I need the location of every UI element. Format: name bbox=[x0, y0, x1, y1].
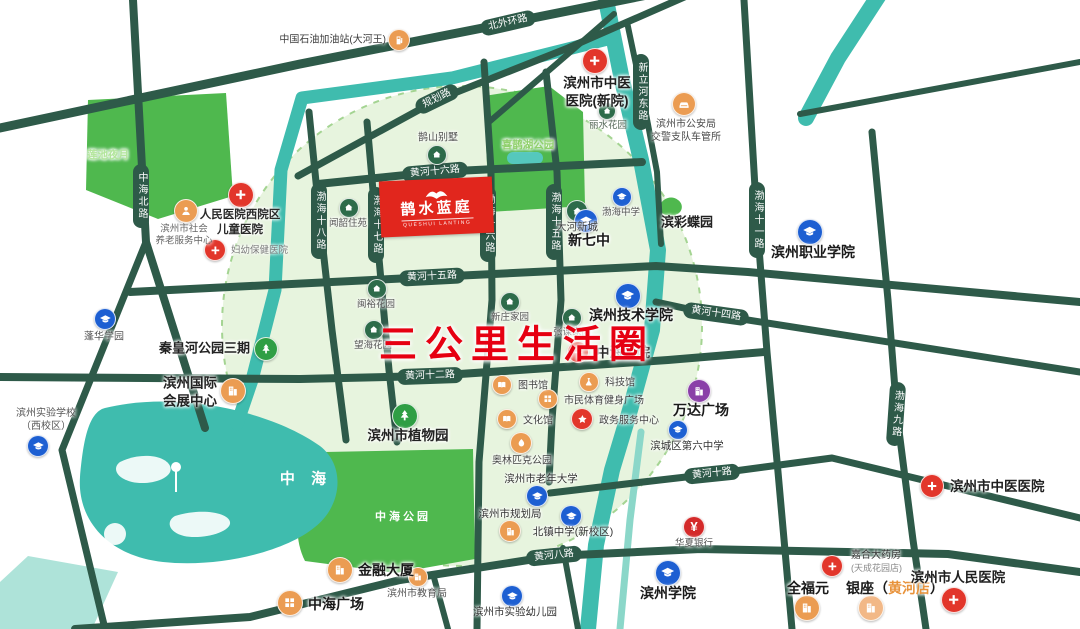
road-label-pill: 中海北路 bbox=[133, 164, 149, 228]
vehicle-admin-marker-icon bbox=[672, 92, 696, 116]
lake bbox=[104, 523, 126, 545]
science-marker-icon bbox=[579, 372, 599, 392]
school-marker-icon bbox=[668, 420, 688, 440]
poi-label: 华夏银行 bbox=[675, 538, 713, 550]
building-marker-icon bbox=[327, 557, 353, 583]
library-marker-icon bbox=[492, 375, 512, 395]
plaza-marker-icon bbox=[277, 590, 303, 616]
poi-label: 滨州市社会 养老服务中心 bbox=[155, 224, 212, 249]
poi-label: 全福元 bbox=[787, 579, 829, 597]
school-marker-icon bbox=[27, 435, 49, 457]
poi-label: 万达广场 bbox=[673, 401, 729, 419]
poi-label: 嘉合大药房 (天成花园店) bbox=[851, 549, 902, 575]
poi-label: 滨州市公安局 交警支队车管所 bbox=[651, 118, 721, 144]
poi-label: 滨州市人民医院 bbox=[911, 569, 1006, 587]
poi-label: 滨州市实验幼儿园 bbox=[473, 606, 557, 620]
lake bbox=[507, 152, 543, 164]
poi-label: 科技馆 bbox=[605, 377, 635, 390]
road bbox=[433, 574, 448, 629]
poi-label: 奥林匹克公园 bbox=[492, 455, 552, 468]
poi-label: 闽裕花园 bbox=[357, 299, 395, 311]
road-label-pill: 新立河东路 bbox=[633, 54, 649, 130]
road-label-pill: 黄河十二路 bbox=[397, 367, 464, 385]
area-label: 中海公园 bbox=[375, 510, 431, 524]
road-label-pill: 渤海十一路 bbox=[749, 182, 765, 258]
building-marker-icon bbox=[499, 520, 521, 542]
poi-label: 滨州市植物园 bbox=[368, 427, 449, 445]
road-15 bbox=[744, 0, 792, 629]
hospital-marker-icon bbox=[941, 587, 967, 613]
school-marker-icon bbox=[797, 219, 823, 245]
poi-label: 丽水花园 bbox=[589, 120, 627, 132]
poi-label: 滨州市规划局 bbox=[479, 508, 542, 522]
poi-label-part: (天成花园店) bbox=[851, 563, 902, 573]
elder-care-marker-icon bbox=[174, 199, 198, 223]
poi-label: 渤海中学 bbox=[602, 207, 640, 219]
bank-marker-icon: ¥ bbox=[683, 516, 705, 538]
residence-marker-icon bbox=[367, 279, 387, 299]
project-name: 鹊水蓝庭 bbox=[400, 199, 473, 217]
area-label: 中 海 bbox=[280, 469, 332, 489]
poi-label: 蓬华学园 bbox=[84, 331, 124, 344]
poi-label: 文化馆 bbox=[523, 415, 553, 428]
poi-label: 滨州实验学校 （西校区） bbox=[16, 407, 76, 433]
park-marker-icon bbox=[392, 403, 418, 429]
poi-label: 闻韶住苑 bbox=[329, 218, 367, 230]
area-label: 喜鹊湖公园 bbox=[502, 139, 555, 153]
poi-label: 金融大厦 bbox=[358, 561, 414, 579]
park-marker-icon bbox=[254, 337, 278, 361]
poi-label: 滨城区第六中学 bbox=[650, 440, 724, 454]
poi-label: 滨州学院 bbox=[640, 584, 696, 602]
hospital-marker-icon bbox=[920, 474, 944, 498]
poi-label: 滨州市中医医院 bbox=[950, 478, 1045, 496]
school-marker-icon bbox=[612, 187, 632, 207]
poi-label: 新七中 bbox=[568, 231, 610, 249]
school-marker-icon bbox=[501, 585, 523, 607]
poi-label: 滨州国际 会展中心 bbox=[163, 374, 217, 409]
poi-label: 政务服务中心 bbox=[599, 415, 659, 428]
school-marker-icon bbox=[526, 485, 548, 507]
school-marker-icon bbox=[94, 308, 116, 330]
poi-label: 滨州职业学院 bbox=[771, 243, 855, 261]
poi-label: 中国石油加油站(大河王) bbox=[279, 34, 386, 47]
poi-label: 中海广场 bbox=[308, 595, 364, 613]
project-subtitle: QUESHUI LANTING bbox=[403, 220, 471, 228]
poi-label: 市民体育健身广场 bbox=[564, 395, 644, 408]
road bbox=[800, 62, 1080, 114]
map-canvas: 北外环路规划路黄河十六路黄河十五路黄河十四路黄河十二路黄河十路黄河八路中海北路渤… bbox=[0, 0, 1080, 629]
area-label: 滨彩蝶园 bbox=[661, 215, 713, 232]
poi-label: 滨州市老年大学 bbox=[504, 473, 578, 487]
poi-label: 鹊山别墅 bbox=[418, 132, 458, 145]
poi-label: 妇幼保健医院 bbox=[231, 245, 288, 257]
poi-label-part: 银座（ bbox=[846, 580, 888, 596]
residence-marker-icon bbox=[427, 145, 447, 165]
life-circle-label: 三公里生活圈 bbox=[379, 314, 655, 369]
hospital-marker-icon bbox=[228, 182, 254, 208]
road-label-pill: 渤海十八路 bbox=[311, 183, 327, 259]
magpie-bird-icon bbox=[423, 186, 450, 200]
building-marker-icon bbox=[220, 378, 246, 404]
library-marker-icon bbox=[497, 409, 517, 429]
poi-label: 秦皇河公园三期 bbox=[159, 341, 250, 358]
sports-park-marker-icon bbox=[510, 432, 532, 454]
school-marker-icon bbox=[655, 560, 681, 586]
school-marker-icon bbox=[560, 505, 582, 527]
residence-marker-icon bbox=[500, 292, 520, 312]
poi-label: 图书馆 bbox=[518, 380, 548, 393]
project-marker: 鹊水蓝庭 QUESHUI LANTING bbox=[379, 177, 494, 238]
building-marker-icon bbox=[858, 595, 884, 621]
government-marker-icon bbox=[571, 408, 593, 430]
poi-label-part: 嘉合大药房 bbox=[851, 550, 901, 561]
poi-label: 北镇中学(新校区) bbox=[533, 526, 614, 540]
gas-station-marker-icon bbox=[388, 29, 410, 51]
poi-label: 滨州市教育局 bbox=[387, 588, 447, 601]
hospital-marker-icon bbox=[821, 555, 843, 577]
poi-label: 滨州市中医 医院(新院) bbox=[563, 74, 631, 109]
building-marker-icon bbox=[794, 595, 820, 621]
area-label: 莲池夜月 bbox=[87, 149, 129, 163]
residence-marker-icon bbox=[339, 198, 359, 218]
building-marker-icon bbox=[687, 379, 711, 403]
hospital-marker-icon bbox=[582, 48, 608, 74]
